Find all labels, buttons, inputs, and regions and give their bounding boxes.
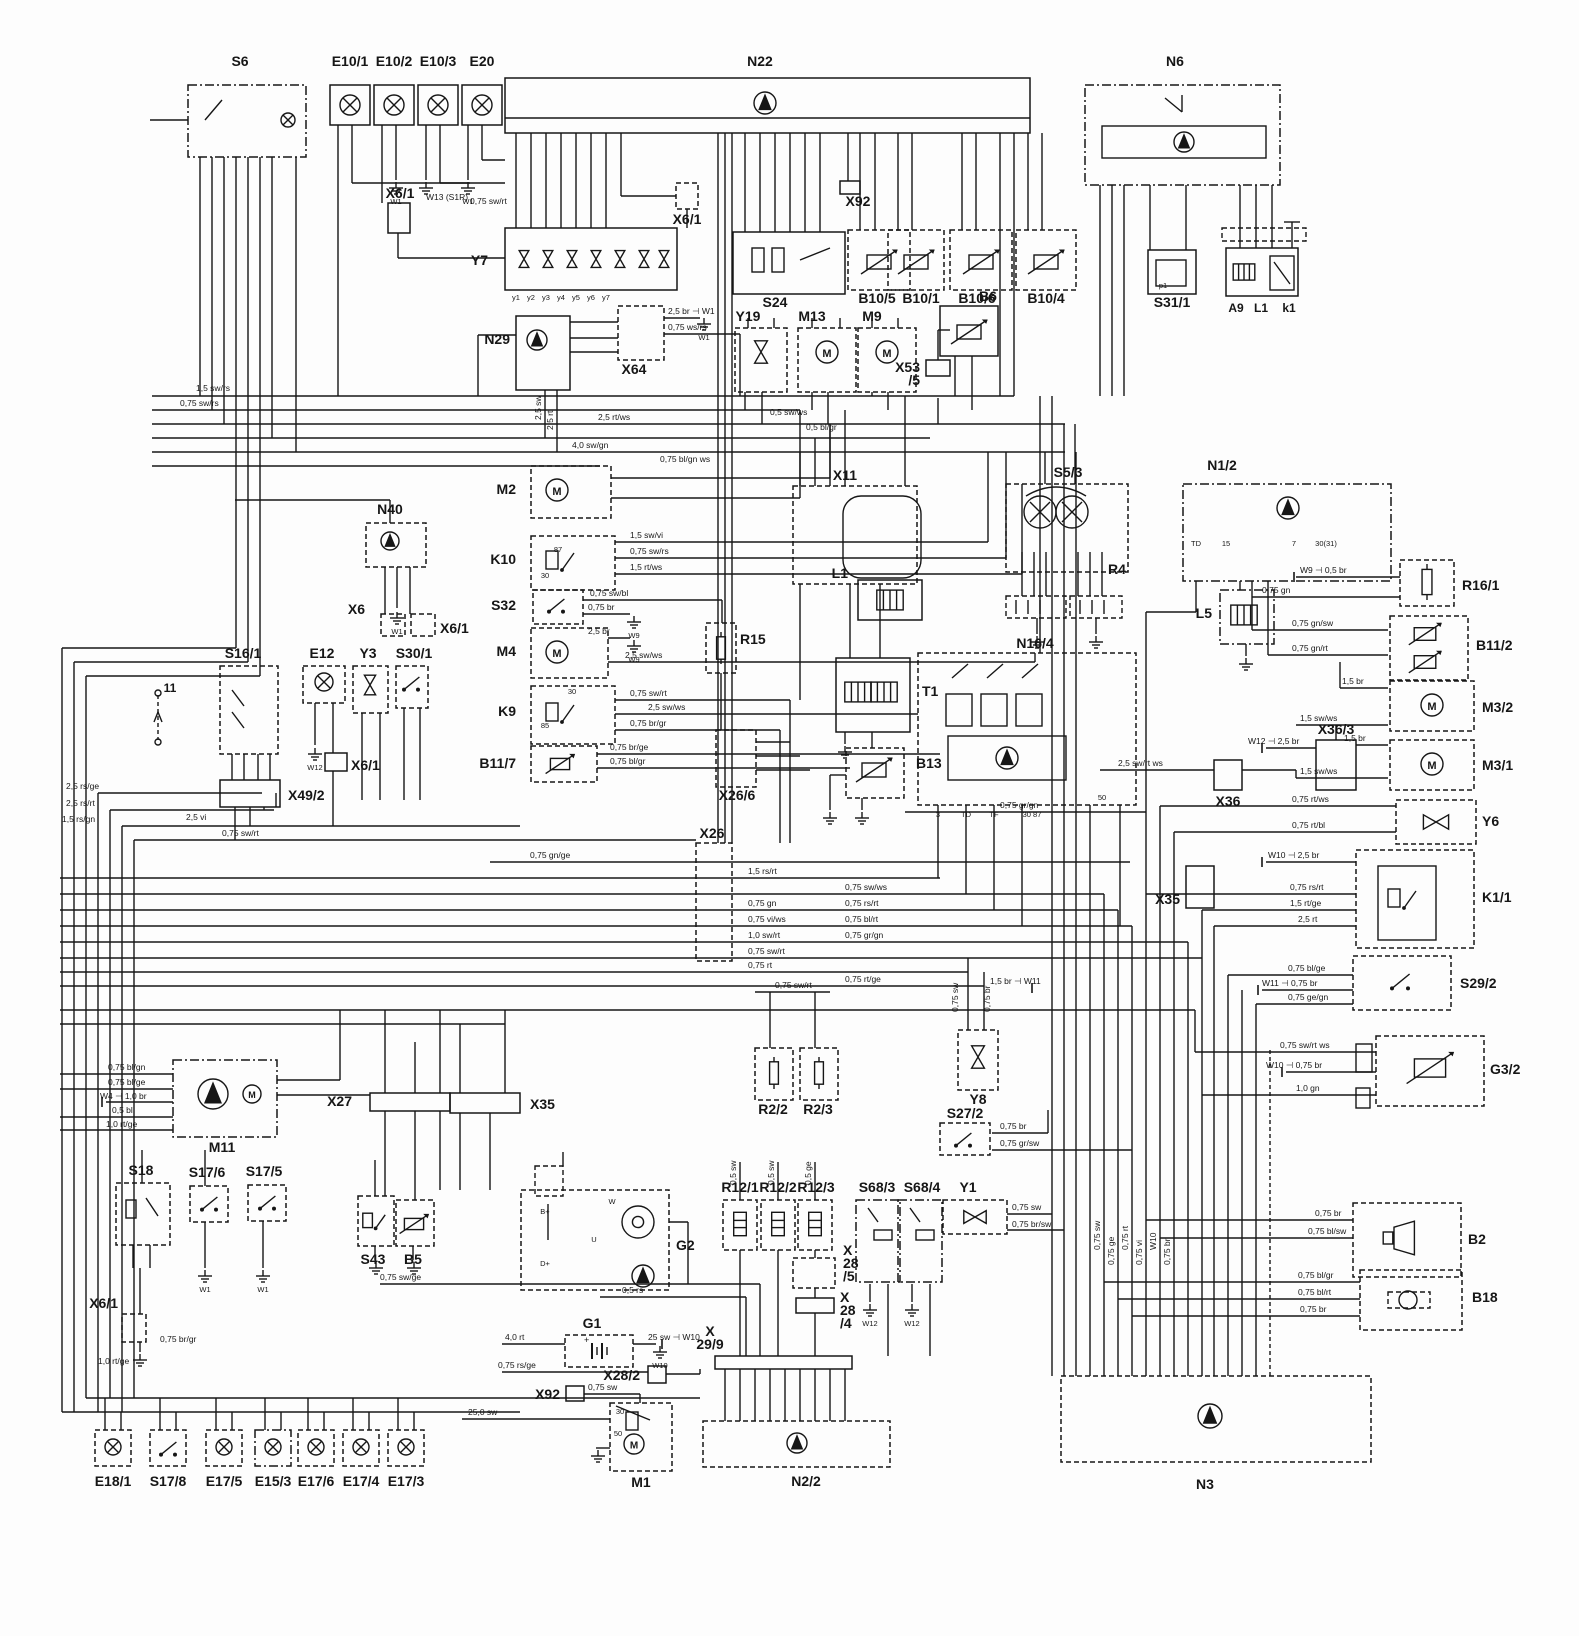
wire-label: 0,75 rs/ge [498,1360,536,1370]
motor-icon: M [1421,753,1443,775]
pin-label: 30 [616,1407,624,1416]
component-box [856,1200,900,1282]
wire-label: 0,75 gn/ge [530,850,570,860]
res-icon [815,1057,824,1089]
component-n2-2: N2/2 [703,1421,890,1489]
component-r12-2: R12/2 [759,1179,797,1250]
wire-label: 0,5 bl [112,1105,133,1115]
detail-rect [1356,1088,1370,1108]
detail-rect [1006,596,1066,618]
component-label: X26 [700,825,725,841]
svg-text:M: M [630,1441,638,1452]
elem-icon [772,1212,785,1235]
wire-label: 0,75 gr/gn [1000,800,1039,810]
pin-label: TD [961,810,972,819]
component-m3-2: MM3/2 [1390,681,1513,731]
wire-label: W10 ⊣ 0,75 br [1266,1060,1322,1070]
detail-rect [772,248,784,272]
coil-icon [871,682,897,702]
sensor-icon [1028,250,1064,274]
component-label: M4 [497,643,517,659]
component-box [255,1430,291,1466]
component-e17-6: E17/6 [298,1430,335,1489]
valvev-icon [543,251,553,268]
component-label: G3/2 [1490,1061,1521,1077]
switch-icon [259,1196,276,1210]
component-box [846,748,904,798]
wire-label: W12 ⊣ 2,5 br [1248,736,1300,746]
component-x36-3: X36/3 [1316,721,1356,790]
svg-text:M: M [1427,701,1436,713]
component-box [396,666,428,708]
pump-icon [754,92,776,114]
motor-icon: M [546,641,568,663]
component-label: X6/1 [386,185,415,201]
wire-label: 0,75 sw [950,982,960,1012]
wire-label: 0,75 br [1315,1208,1342,1218]
component-label: L5 [1196,605,1213,621]
component-box [761,1200,795,1250]
wire-label: 0,75 bl/gr [610,756,646,766]
component-sub-label: 11 [164,681,177,695]
coil-icon [1233,264,1255,280]
wire [987,664,1003,678]
wire-label: 0,75 bl/gn ws [660,454,710,464]
component-label: Y6 [1482,813,1499,829]
pin-label: 85 [541,721,549,730]
lamp-icon [315,673,333,691]
wire-label: 0,75 rs/rt [845,898,879,908]
wire-label: 25,0 sw [468,1407,498,1417]
lamp-icon [384,95,404,115]
pump-icon [1198,1404,1222,1428]
component-box [1148,250,1196,294]
pin-label: y2 [527,293,535,302]
ground-label: W1 [391,627,402,636]
lamp-icon [353,1439,369,1455]
detail-rect [752,248,764,272]
wire-label: 0,5 sw/ws [770,407,807,417]
wire-label: 0,75 sw [1092,1220,1102,1250]
component-x64: X64 [618,306,664,377]
wire-label: 2,5 rs/rt [66,798,95,808]
wire-label: 2,5 br [588,626,610,636]
pin-label: 7 [1292,539,1296,548]
component-label: E10/1 [332,53,369,69]
detail-rect [535,1166,563,1196]
pin-label: 30 87 [1023,810,1042,819]
lamp-icon [281,113,295,127]
component-m2: MM2 [497,466,611,518]
component-label: E17/4 [343,1473,380,1489]
component-box [798,1200,832,1250]
wire-label: 0,75 gr/gn [845,930,884,940]
wire-label: 0,75 bl/rt [1298,1287,1332,1297]
coil-icon [877,590,903,610]
detail-rect [1356,1044,1372,1072]
component-box [303,666,345,703]
component-r4: R4 [1108,561,1126,577]
lamp-icon [105,1439,121,1455]
component-label: B11/7 [479,755,516,771]
wire-label: 0,75 bl/sw [1308,1226,1347,1236]
detail-rect [843,496,921,578]
wire-label: W10 [1148,1232,1158,1250]
component-label: E17/5 [206,1473,243,1489]
component-box [531,466,611,518]
component-label: X35 [1155,891,1180,907]
component-e10-3: E10/3 [418,53,458,125]
wire-label: 0,75 gn [748,898,777,908]
wire [202,1197,217,1210]
component-label: Y3 [359,645,376,661]
sensor-icon [546,754,575,773]
motor-icon: M [624,1434,644,1454]
wire-label: 2,5 rt [545,410,555,430]
component-label: N29 [484,331,510,347]
component-box [1353,1203,1461,1277]
component-x26: X26 [696,825,732,961]
component-label: X35 [530,1096,555,1112]
sensor-icon [1409,623,1441,645]
wire-label: 1,5 sw/ws [1300,713,1337,723]
component-r16-1: R16/1 [1400,560,1500,606]
wire-label: 0,75 gr/sw [1000,1138,1040,1148]
wire-label: 1,0 rt/ge [98,1356,129,1366]
component-label: X36 [1216,793,1241,809]
pin-label: 30 [568,687,576,696]
component-m13: MM13 [798,308,856,392]
wire-label: 0,75 br [1300,1304,1327,1314]
ground-symbol [591,1450,605,1462]
component-label: K10 [490,551,516,567]
component-y7: Y7 [471,228,677,290]
ground-symbol: W1 [390,612,404,636]
valvev-icon [615,251,625,268]
component-k10: K10 [490,536,615,590]
switch-icon [201,1197,218,1211]
pump-icon [787,1433,807,1453]
ground-symbol: W12 [862,1304,877,1328]
wire-label: 0,75 sw/rt [630,688,667,698]
component-label: X53/5 [895,359,920,388]
component-label: X29/9 [696,1323,723,1352]
component-label: K1/1 [1482,889,1512,905]
component-label: S17/5 [246,1163,283,1179]
component-box [1016,230,1076,290]
component-b18: B18 [1360,1270,1498,1330]
valvev-icon [639,251,649,268]
component-box [353,666,388,713]
ground-symbol [855,812,869,824]
component-x53-5: X53/5 [895,359,950,388]
component-b11-7: B11/7 [479,746,597,782]
valvev-icon [972,1046,985,1068]
component-label: N40 [377,501,403,517]
component-box [898,1200,942,1282]
pump-icon [1174,132,1194,152]
component-label: E20 [470,53,495,69]
component-m9: MM9 [858,308,916,392]
wire-label: W10 ⊣ 2,5 br [1268,850,1320,860]
component-k9: K9 [498,686,615,744]
pin-label: 50 [614,1429,622,1438]
wire-label: W9 ⊣ 0,5 br [1300,565,1347,575]
pin-label: B+ [540,1207,550,1216]
wire [549,599,564,612]
wire-label: W11 ⊣ 0,75 br [1262,978,1318,988]
pin-label: p1 [1159,281,1167,290]
wire [1407,1052,1454,1083]
component-b10-4: B10/4 [1016,230,1076,306]
coil-icon [1231,605,1257,625]
component-y6: Y6 [1396,800,1499,844]
wire-label: 1,5 br [1344,733,1366,743]
component-e17-3: E17/3 [388,1430,425,1489]
component-box [531,746,597,782]
wire-label: 2,5 vi [186,812,206,822]
component-label: X6/1 [440,620,469,636]
component-label: B2 [1468,1231,1486,1247]
component-m11: M11 [173,1060,277,1155]
component-label: N2/2 [791,1473,821,1489]
component-box [676,183,698,209]
res-icon [1422,564,1432,600]
component-x27: X27 [327,1093,450,1111]
pin-label: 87 [554,545,562,554]
pin-label: y3 [542,293,550,302]
wire-label: 4,0 sw/gn [572,440,609,450]
valvev-icon [755,341,768,363]
component-b2: B2 [1353,1203,1486,1277]
component-label: M3/1 [1482,757,1513,773]
sensor-icon [1407,1052,1454,1083]
ground-label: W1 [257,1285,268,1294]
wire-label: 2,5 sw [533,395,543,420]
pin-label: 15 [1222,539,1230,548]
ground-symbol: W12 [307,748,322,772]
component-box [206,1430,242,1466]
component-label: B5 [404,1251,422,1267]
lamp-icon [265,1439,281,1455]
component-box [1061,1376,1371,1462]
detail-circle [1399,1291,1417,1309]
component-x-29-9: X29/9 [696,1323,723,1352]
detail-rect [946,694,972,726]
wire-label: 0,75 br [1000,1121,1027,1131]
component-label: S17/6 [189,1164,226,1180]
component-box [370,1093,450,1111]
wiring-diagram-page: W1W1W1W1W9W9W12W1W1W12W12W10MMS6E10/1E10… [0,0,1579,1636]
component-label: E10/3 [420,53,457,69]
wire-label: 0,75 br [588,602,615,612]
component-box [1353,956,1451,1010]
component-label: L1 [832,565,849,581]
wire-label: 0,75 rt/bl [1292,820,1325,830]
component-box [733,232,845,294]
wire-label: 1,5 rt/ge [1290,898,1321,908]
horn-icon [1383,1221,1414,1255]
component-label: X6/1 [89,1295,118,1311]
component-box [618,306,664,360]
component-e10-1: E10/1 [330,53,370,125]
component-label: E15/3 [255,1473,292,1489]
wire [952,664,968,678]
component-label: R16/1 [1462,577,1500,593]
component-box [796,1298,834,1313]
wire-label: 1,0 rt/ge [106,1119,137,1129]
wire [956,1133,971,1146]
wire [800,248,830,260]
component-label: B18 [1472,1289,1498,1305]
wire-label: 0,75 sw/rt [775,980,812,990]
component-box [1183,484,1391,581]
valvev-icon [364,675,375,695]
pin-label: y6 [587,293,595,302]
lamp-icon [308,1439,324,1455]
component-label: M13 [798,308,825,324]
component-label: S68/4 [904,1179,941,1195]
wire-label: 0,75 vi [1134,1240,1144,1265]
component-label: S17/8 [150,1473,187,1489]
switch-icon [160,1442,177,1456]
component-sub-label: A9 [1228,301,1244,315]
component-box [1376,1036,1484,1106]
valvev-icon [659,251,669,268]
component-b5: B5 [396,1200,434,1267]
component-box [173,1060,277,1137]
wire-label: 0,75 gn/rt [1292,643,1329,653]
component-s29-2: S29/2 [1353,956,1497,1010]
component-label: R12/2 [759,1179,797,1195]
component-box [565,1335,633,1367]
wire-label: 1,0 gn [1296,1083,1320,1093]
wire [161,1442,176,1455]
component-label: M9 [862,308,882,324]
alt-icon [622,1206,654,1238]
wire-label: 4,0 rt [505,1332,525,1342]
motor-icon: M [546,479,568,501]
component-label: X92 [846,193,871,209]
component-label: B6 [979,288,997,304]
component-box [836,658,910,732]
component-box [1214,760,1242,790]
wire-label: 2,5 rt [1298,914,1318,924]
valve-icon [964,1211,986,1224]
pin-label: TF [989,810,999,819]
motor-icon: M [1421,694,1443,716]
component-box [1390,616,1468,680]
component-box [798,328,856,392]
sensor-icon [951,320,987,344]
switch-icon [403,677,420,691]
ground-label: W9 [628,631,639,640]
component-label: X6/1 [351,757,380,773]
ground-label: W12 [904,1319,919,1328]
wire-label: 0,75 bl/ge [1288,963,1326,973]
motor-icon: M [243,1085,261,1103]
component-label: X92 [535,1386,560,1402]
component-box [1360,1270,1462,1330]
component-e17-5: E17/5 [206,1430,243,1489]
pin-label: D+ [540,1259,550,1268]
component-x35: X35 [450,1093,555,1113]
pin-label: y4 [557,293,565,302]
pin-label: 30 [541,571,549,580]
ground-symbol [133,1354,147,1366]
component-label: T1 [922,683,939,699]
component-x-28-5: X28/5 [793,1242,859,1288]
component-label: R4 [1108,561,1126,577]
pump-icon [996,747,1018,769]
component-n3: N3 [1061,1376,1371,1492]
component-box [848,230,910,290]
component-x26-6: X26/6 [716,730,756,803]
component-box [1226,248,1298,296]
component-box [940,306,998,356]
component-x36: X36 [1214,760,1242,809]
motor-icon: M [816,341,838,363]
component-x-28-4: X28/4 [796,1289,856,1331]
detail-rect [1016,694,1042,726]
wire [1404,891,1416,908]
switch-icon [955,1133,972,1147]
wire-label: 1,5 rs/rt [748,866,777,876]
component-x6-1: X6/1 [673,183,702,227]
wire-label: 0,75 rt/ws [1292,794,1329,804]
component-e18-1: E18/1 [95,1430,132,1489]
component-r12-1: R12/1 [721,1179,759,1250]
component-g1: +G1 [565,1315,633,1367]
detail-rect [1070,596,1122,618]
wire-label: 0,75 bl/gn [108,1062,146,1072]
wire-label: 0,75 br/sw [1012,1219,1052,1229]
wire-label: 0,75 vi/ws [748,914,786,924]
component-box [516,316,570,390]
wire-label: 0,75 sw/rt [222,828,259,838]
component-label: X6/1 [673,211,702,227]
component-s6: S6 [188,53,306,157]
svg-text:M: M [882,348,891,360]
component-label: S32 [491,597,516,613]
wire-label: 0,5 sw [728,1160,738,1185]
component-label: Y8 [969,1091,986,1107]
component-label: X49/2 [288,787,325,803]
wire-label: 0,75 rt [748,960,773,970]
wire-label: 1,5 rs/gn [62,814,95,824]
component-label: K9 [498,703,516,719]
ground-symbol: W12 [904,1304,919,1328]
component-n29: N29 [484,316,570,390]
component-label: B10/1 [902,290,940,306]
wire-label: 0,75 br [982,985,992,1012]
component-label: G1 [583,1315,602,1331]
component-box [715,1356,852,1369]
wire-label: 2,5 br ⊣ W1 [668,306,715,316]
component-n1-2: N1/2 [1183,457,1391,581]
wire [1022,664,1038,678]
component-box [343,1430,379,1466]
component-label: N6 [1166,53,1184,69]
wire-label: 1,5 sw/vi [630,530,663,540]
component-b11-2: B11/2 [1390,616,1513,680]
component-box [755,1048,793,1100]
component-r15: R15 [706,623,766,673]
ground-symbol [1239,658,1253,670]
lamp-icon [340,95,360,115]
wire [1274,262,1290,284]
component-x92: X92 [535,1386,584,1402]
